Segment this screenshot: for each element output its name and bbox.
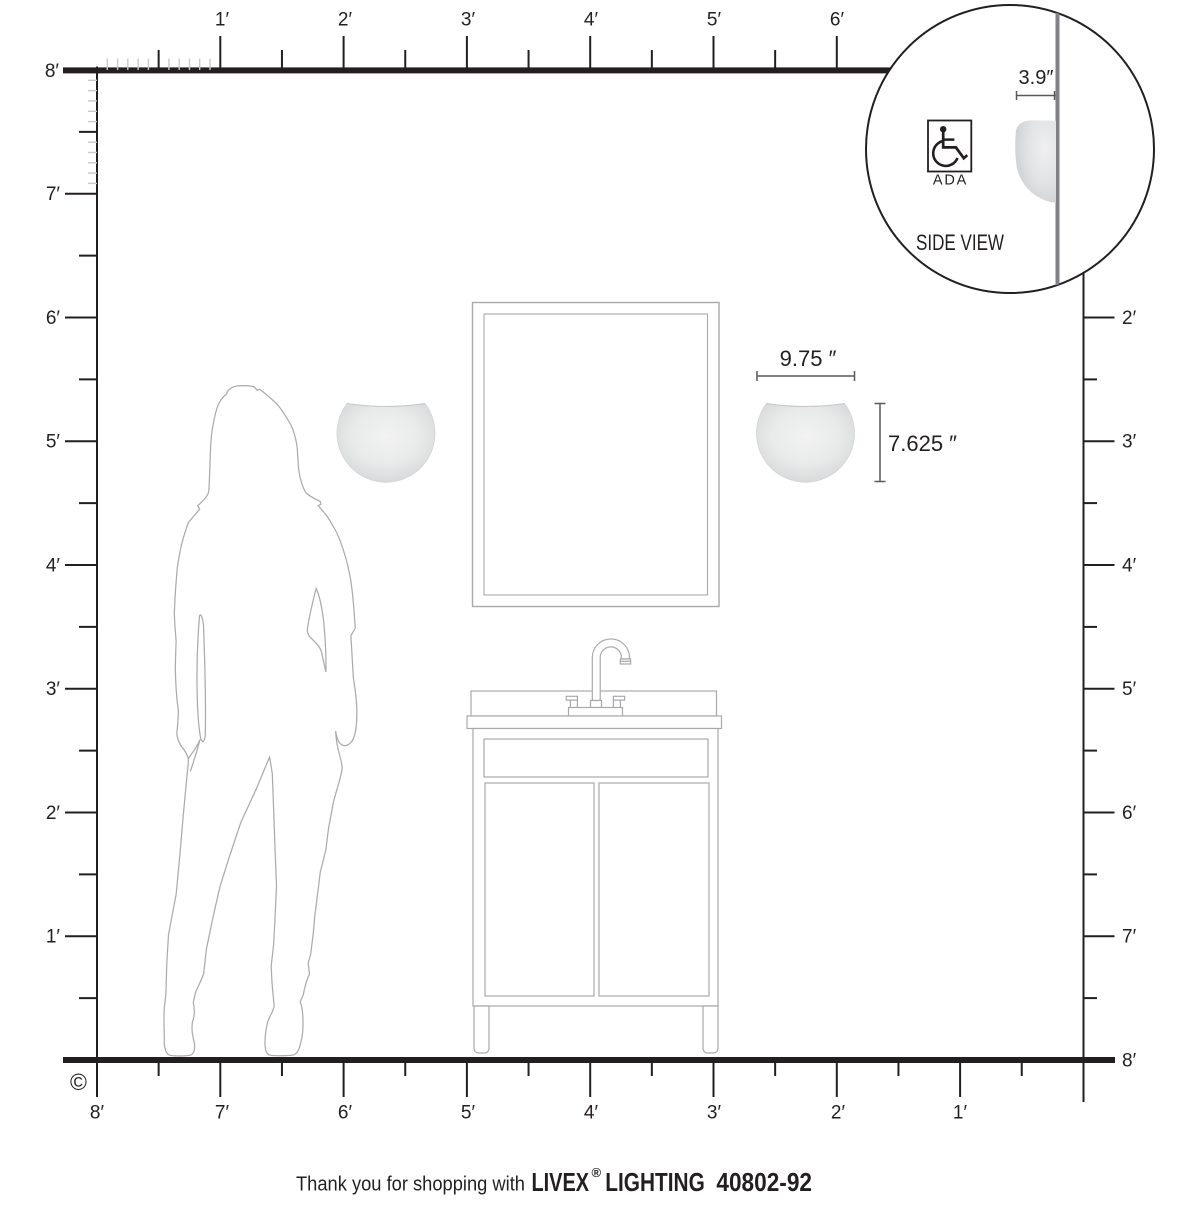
svg-text:2′: 2′ xyxy=(46,803,61,824)
svg-text:3′: 3′ xyxy=(461,10,476,31)
svg-text:5′: 5′ xyxy=(1122,679,1137,700)
svg-text:9.75 ″: 9.75 ″ xyxy=(780,346,837,371)
svg-text:4′: 4′ xyxy=(584,10,599,31)
svg-text:4′: 4′ xyxy=(1122,556,1137,577)
svg-text:4′: 4′ xyxy=(584,1103,599,1124)
svg-text:8′: 8′ xyxy=(90,1103,105,1124)
svg-text:7.625 ″: 7.625 ″ xyxy=(888,431,957,456)
svg-text:6′: 6′ xyxy=(1122,803,1137,824)
svg-text:8′: 8′ xyxy=(1122,1051,1137,1072)
svg-text:6′: 6′ xyxy=(338,1103,353,1124)
svg-text:7′: 7′ xyxy=(215,1103,230,1124)
svg-text:3′: 3′ xyxy=(46,679,61,700)
svg-text:5′: 5′ xyxy=(46,432,61,453)
svg-text:6′: 6′ xyxy=(46,308,61,329)
svg-text:ADA: ADA xyxy=(933,173,968,189)
svg-text:LIGHTING: LIGHTING xyxy=(605,1169,705,1197)
svg-text:3′: 3′ xyxy=(707,1103,722,1124)
svg-text:Thank you for shopping with: Thank you for shopping with xyxy=(296,1173,525,1196)
svg-text:8′: 8′ xyxy=(45,61,60,82)
svg-text:6′: 6′ xyxy=(830,10,845,31)
svg-text:1′: 1′ xyxy=(46,927,61,948)
svg-text:©: © xyxy=(70,1069,87,1095)
svg-text:7′: 7′ xyxy=(46,184,61,205)
svg-text:LIVEX: LIVEX xyxy=(532,1169,590,1197)
svg-text:1′: 1′ xyxy=(953,1103,968,1124)
svg-text:3.9″: 3.9″ xyxy=(1019,67,1054,89)
svg-text:7′: 7′ xyxy=(1122,927,1137,948)
svg-text:SIDE VIEW: SIDE VIEW xyxy=(916,230,1004,255)
svg-text:2′: 2′ xyxy=(1122,308,1137,329)
svg-text:1′: 1′ xyxy=(215,10,230,31)
svg-text:2′: 2′ xyxy=(338,10,353,31)
svg-text:2′: 2′ xyxy=(831,1103,846,1124)
svg-text:5′: 5′ xyxy=(707,10,722,31)
svg-text:40802-92: 40802-92 xyxy=(716,1169,812,1197)
svg-text:®: ® xyxy=(592,1165,602,1180)
svg-text:4′: 4′ xyxy=(46,556,61,577)
svg-text:3′: 3′ xyxy=(1122,432,1137,453)
svg-text:5′: 5′ xyxy=(461,1103,476,1124)
